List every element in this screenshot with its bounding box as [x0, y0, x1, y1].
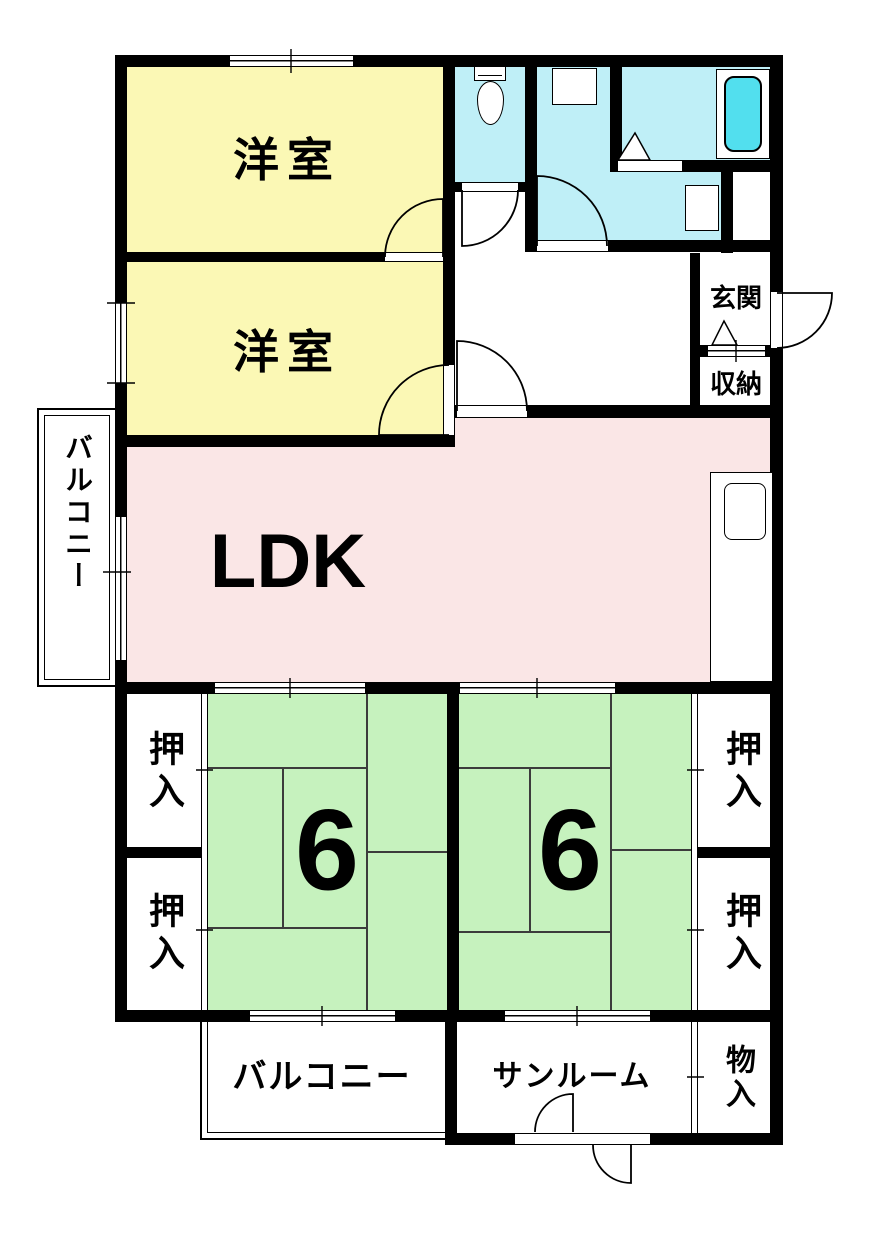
fusuma-tatami2-oshiire [691, 694, 698, 1010]
wall-oshiire-divider-right [692, 847, 783, 858]
fusuma-tatami1-oshiire [201, 694, 208, 1010]
genkan-step-triangle [712, 321, 737, 345]
window-western2-left [115, 303, 127, 383]
sliding-door-shuno [708, 345, 765, 357]
wall-sunroom-left [445, 1022, 457, 1145]
wall-oshiire-divider-left [115, 847, 205, 858]
label-monoire: 物入 [722, 1044, 752, 1112]
label-western-room-1: 洋室 [233, 137, 341, 183]
label-balcony-bottom: バルコニー [232, 1060, 411, 1094]
door-opening-washroom [537, 240, 608, 252]
window-tatami2-south [505, 1010, 650, 1022]
kitchen-sink-icon [724, 483, 766, 540]
tatami-line [610, 694, 612, 1010]
tatami-line [205, 927, 367, 929]
door-arc-genkan [777, 293, 832, 348]
washbasin-icon [685, 185, 719, 231]
label-oshiire-bottom-right: 押入 [723, 892, 759, 976]
label-western-room-2: 洋室 [233, 329, 341, 375]
fusuma-sunroom-monoire [691, 1022, 698, 1133]
label-oshiire-top-left: 押入 [146, 730, 182, 814]
door-opening-ldk [457, 405, 527, 418]
wall-bath-left [610, 55, 622, 160]
label-genkan: 玄関 [710, 285, 762, 311]
washing-machine-icon [552, 68, 597, 105]
window-ldk-left [115, 517, 127, 660]
door-opening-western1 [385, 252, 443, 262]
window-tatami2-north [460, 682, 615, 694]
label-sunroom: サンルーム [492, 1062, 651, 1092]
door-opening-bathroom [618, 160, 682, 172]
door-arc-sunroom-outer [593, 1145, 631, 1183]
door-arc-toilet [462, 190, 518, 246]
wall-corridor-north [608, 240, 783, 252]
label-oshiire-bottom-left: 押入 [146, 892, 182, 976]
window-western1-top [230, 55, 353, 67]
tatami-line [367, 851, 447, 853]
bathtub-icon [724, 76, 762, 152]
tatami-line [205, 767, 367, 769]
door-arc-ldk [457, 341, 527, 411]
wall-western2-bottom [115, 435, 455, 447]
wall-genkan-left [690, 253, 700, 418]
label-balcony-left: バルコニー [63, 433, 91, 593]
wall-tatami-divider [447, 694, 459, 1010]
label-tatami1-size: 6 [295, 794, 359, 909]
window-tatami1-north [215, 682, 365, 694]
wall-bottom-main [115, 1010, 783, 1022]
label-tatami2-size: 6 [538, 794, 602, 909]
door-opening-toilet [462, 182, 518, 192]
tatami-line [366, 694, 368, 1010]
toilet-tank-icon [474, 66, 506, 81]
tatami-line [455, 767, 612, 769]
door-opening-western2 [443, 365, 455, 435]
window-tatami1-south [250, 1010, 395, 1022]
tatami-line [282, 767, 284, 928]
label-oshiire-top-right: 押入 [723, 730, 759, 814]
tatami-line [455, 931, 612, 933]
door-opening-sunroom [515, 1133, 650, 1145]
label-shuno: 収納 [710, 371, 762, 397]
tatami-line [529, 767, 531, 933]
floor-plan: 洋室 洋室 LDK 6 6 押入 押入 押入 押入 玄関 収納 バルコニー バル… [0, 0, 874, 1236]
door-opening-genkan [770, 292, 783, 348]
tatami-line [610, 849, 692, 851]
door-arc-sunroom-inner [535, 1094, 573, 1132]
wall-toilet-right [525, 55, 537, 252]
label-ldk: LDK [210, 524, 366, 600]
